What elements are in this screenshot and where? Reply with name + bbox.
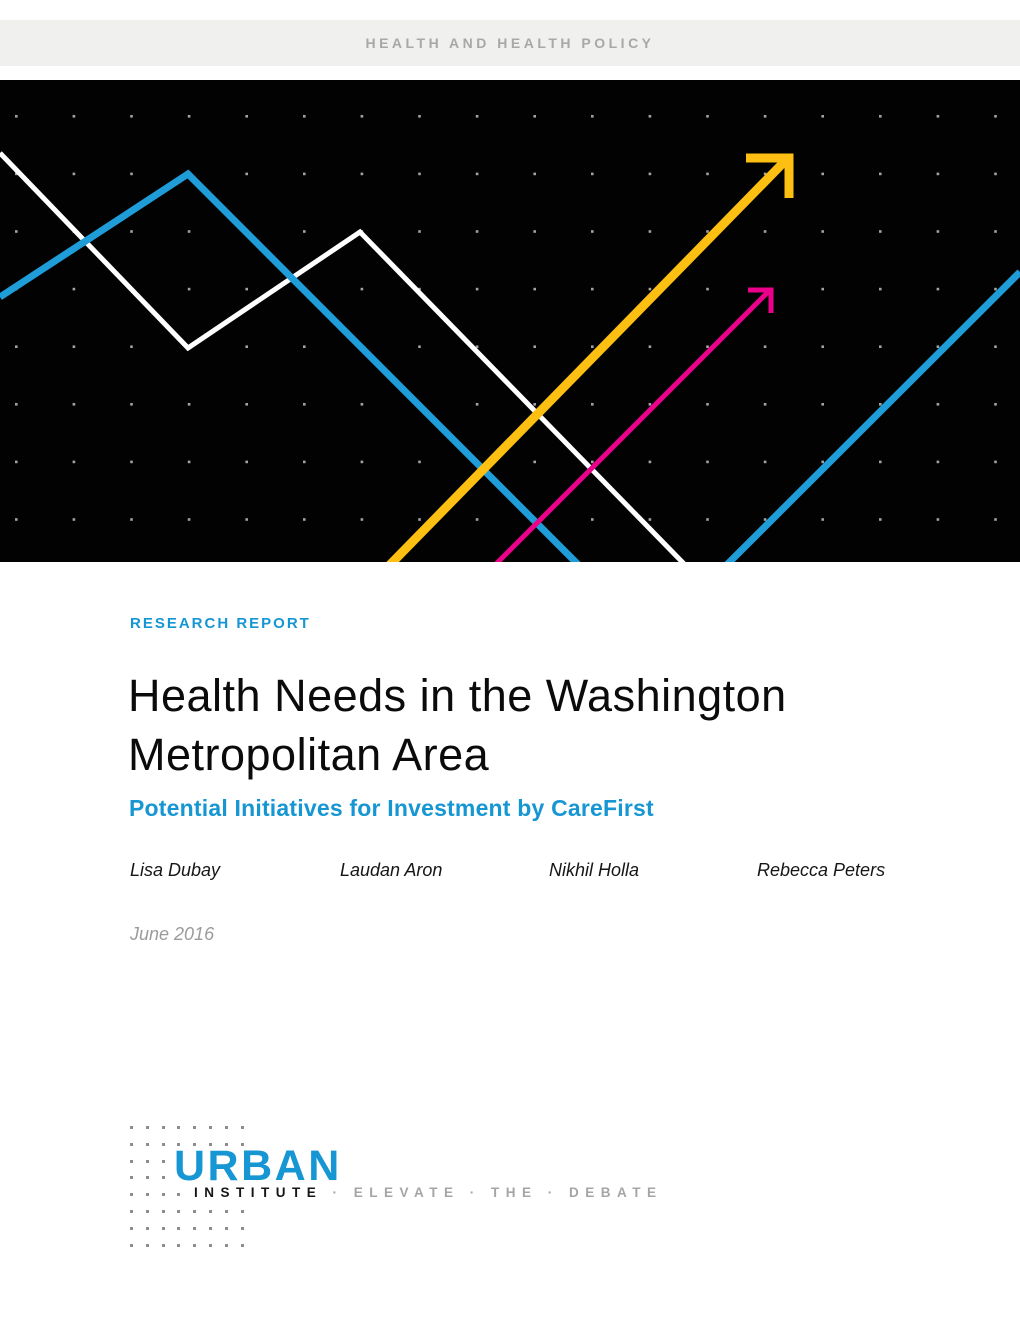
report-cover-page: { "band": { "label": "HEALTH AND HEALTH … (0, 0, 1020, 1320)
logo-dot (130, 1193, 133, 1196)
logo-dot (146, 1210, 149, 1213)
yellow-arrow-icon (378, 158, 789, 562)
logo-dot (209, 1227, 212, 1230)
logo-dot (177, 1210, 180, 1213)
logo-dot (130, 1244, 133, 1247)
logo-dot (177, 1126, 180, 1129)
logo-dot (162, 1244, 165, 1247)
logo-dot (193, 1244, 196, 1247)
logo-dot (162, 1160, 165, 1163)
title-line-1: Health Needs in the Washington (128, 666, 988, 725)
logo-dot (177, 1227, 180, 1230)
logo-dot (209, 1244, 212, 1247)
logo-motto-text: · ELEVATE · THE · DEBATE (333, 1185, 663, 1200)
logo-dot (130, 1160, 133, 1163)
logo-dot (225, 1210, 228, 1213)
white-zigzag-line (0, 153, 775, 562)
logo-dot (177, 1193, 180, 1196)
logo-dot (241, 1244, 244, 1247)
author-name: Rebecca Peters (757, 860, 885, 881)
logo-dot (146, 1126, 149, 1129)
logo-dot (162, 1193, 165, 1196)
logo-dot (225, 1126, 228, 1129)
logo-tagline: INSTITUTE · ELEVATE · THE · DEBATE (194, 1185, 663, 1200)
logo-dot (241, 1126, 244, 1129)
logo-dot (130, 1210, 133, 1213)
report-type-label: RESEARCH REPORT (130, 615, 311, 632)
logo-wordmark: URBAN (174, 1146, 342, 1186)
author-name: Lisa Dubay (130, 860, 220, 881)
logo-dot (193, 1126, 196, 1129)
logo-dot (146, 1193, 149, 1196)
logo-dot (130, 1176, 133, 1179)
logo-dot (225, 1227, 228, 1230)
blue-zigzag-line (0, 174, 1020, 562)
page-title: Health Needs in the Washington Metropoli… (128, 666, 988, 784)
logo-dot (130, 1227, 133, 1230)
urban-institute-logo: URBAN INSTITUTE · ELEVATE · THE · DEBATE (130, 1122, 690, 1257)
author-name: Laudan Aron (340, 860, 442, 881)
publication-date: June 2016 (130, 924, 214, 945)
logo-dot (177, 1244, 180, 1247)
logo-dot (130, 1143, 133, 1146)
author-name: Nikhil Holla (549, 860, 639, 881)
logo-dot (241, 1210, 244, 1213)
logo-dot (209, 1126, 212, 1129)
logo-dot (162, 1210, 165, 1213)
logo-dot (146, 1244, 149, 1247)
logo-dot (225, 1244, 228, 1247)
logo-dot (193, 1210, 196, 1213)
report-subtitle: Potential Initiatives for Investment by … (129, 795, 654, 822)
logo-dot (209, 1210, 212, 1213)
hero-art (0, 80, 1020, 562)
logo-institute-label: INSTITUTE (194, 1185, 322, 1200)
logo-dot (146, 1176, 149, 1179)
logo-dot (241, 1227, 244, 1230)
title-line-2: Metropolitan Area (128, 725, 988, 784)
logo-dot (162, 1126, 165, 1129)
series-band-label: HEALTH AND HEALTH POLICY (365, 35, 654, 51)
logo-dot (162, 1143, 165, 1146)
cover-hero-graphic (0, 80, 1020, 562)
logo-dot (193, 1227, 196, 1230)
logo-motto (322, 1185, 332, 1200)
logo-dot (130, 1126, 133, 1129)
logo-dot (162, 1227, 165, 1230)
logo-dot (146, 1143, 149, 1146)
logo-dot (146, 1227, 149, 1230)
logo-dot (162, 1176, 165, 1179)
series-band: HEALTH AND HEALTH POLICY (0, 20, 1020, 66)
logo-dot (146, 1160, 149, 1163)
